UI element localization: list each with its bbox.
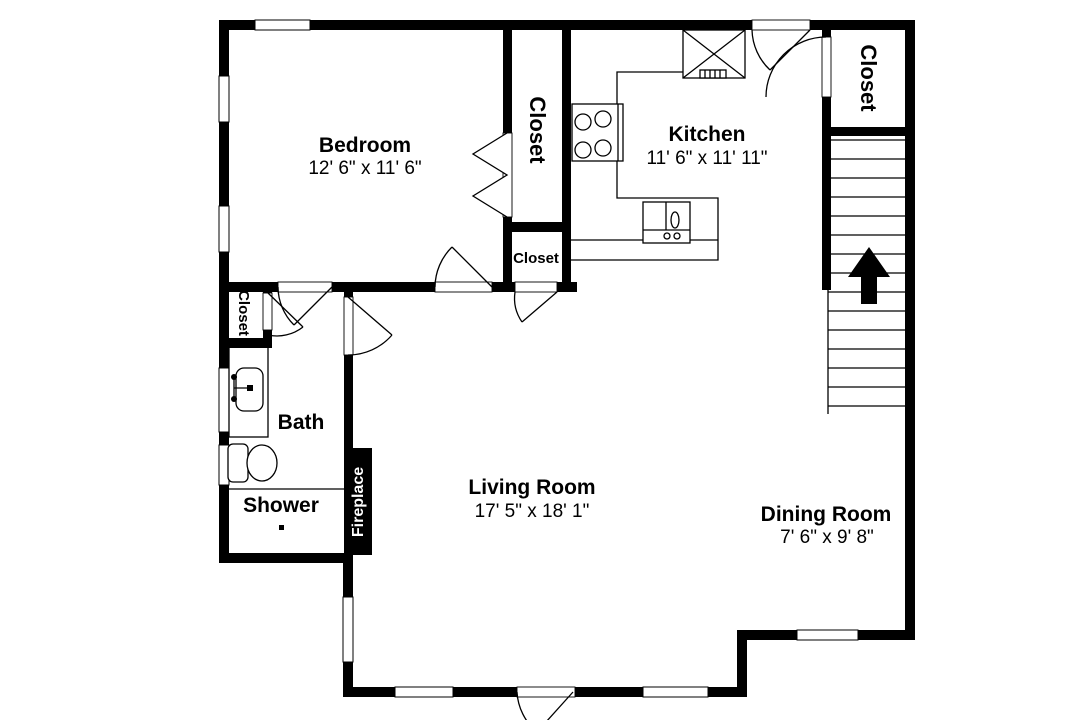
wall-right [905,20,915,640]
floor-plan-image: Bedroom 12' 6" x 11' 6" Kitchen 11' 6" x… [0,0,1080,720]
toilet-tank-icon [228,444,248,482]
bedroom-closet-label: Closet [525,96,550,164]
floor-plan-page: Bedroom 12' 6" x 11' 6" Kitchen 11' 6" x… [0,0,1080,720]
bath-living-door-swing [348,297,392,355]
window-bath-left-1 [219,368,229,432]
window-living-bottom-1 [395,687,453,697]
wall-closet-right [562,30,571,282]
living-room-label: Living Room [468,476,595,499]
dining-room-dims: 7' 6" x 9' 8" [780,527,874,548]
bath-label: Bath [278,411,325,434]
opening-hall-closet-door [263,293,272,330]
stairs-wall-door-swing [766,37,826,97]
opening-small-closet-door [515,282,557,292]
stairs-up-arrow-icon [848,247,890,304]
shower-drain-icon [279,525,284,530]
opening-kitchen-entry [752,20,810,30]
stove-burner-4 [595,140,611,156]
window-dining-bottom [797,630,858,640]
small-closet-label: Closet [513,250,559,267]
stove-burner-2 [595,111,611,127]
stairs-closet-label: Closet [856,44,881,112]
window-bedroom-left-1 [219,76,229,122]
opening-bath-door [278,282,332,292]
window-living-left [343,597,353,662]
stove-burner-3 [575,142,591,158]
shower-label: Shower [243,494,319,517]
kitchen-label: Kitchen [668,123,745,146]
opening-bedroom-door [435,282,492,292]
door-leaf-bath-living-wall [344,297,353,355]
fireplace-label: Fireplace [350,467,367,537]
small-closet-door-swing [515,292,557,322]
hall-closet-label: Closet [235,290,252,336]
window-bedroom-top [255,20,310,30]
dining-room-label: Dining Room [761,503,892,526]
bath-door-swing [278,287,332,325]
stove-burner-1 [575,114,591,130]
opening-exterior-door [517,687,575,697]
wall-closet-mid [503,222,571,232]
bedroom-door-swing [435,247,492,287]
wall-notch [737,630,747,697]
refrigerator-vent [700,70,726,78]
bedroom-label: Bedroom [319,134,411,157]
vanity-faucet-icon [247,385,253,391]
kitchen-entry-door-swing [752,30,810,70]
toilet-bowl-icon [247,445,277,481]
wall-stairs-closet-bottom [822,127,915,136]
stairs [828,140,905,414]
walls [219,20,915,697]
wall-top [219,20,915,30]
window-living-bottom-2 [643,687,708,697]
door-leaf-stairs-wall [822,37,831,97]
living-room-dims: 17' 5" x 18' 1" [475,501,590,522]
kitchen-dims: 11' 6" x 11' 11" [646,148,767,169]
bedroom-dims: 12' 6" x 11' 6" [308,158,421,179]
wall-bath-bottom [219,553,353,563]
window-bedroom-left-2 [219,206,229,252]
bifold-door-icon [473,133,507,217]
